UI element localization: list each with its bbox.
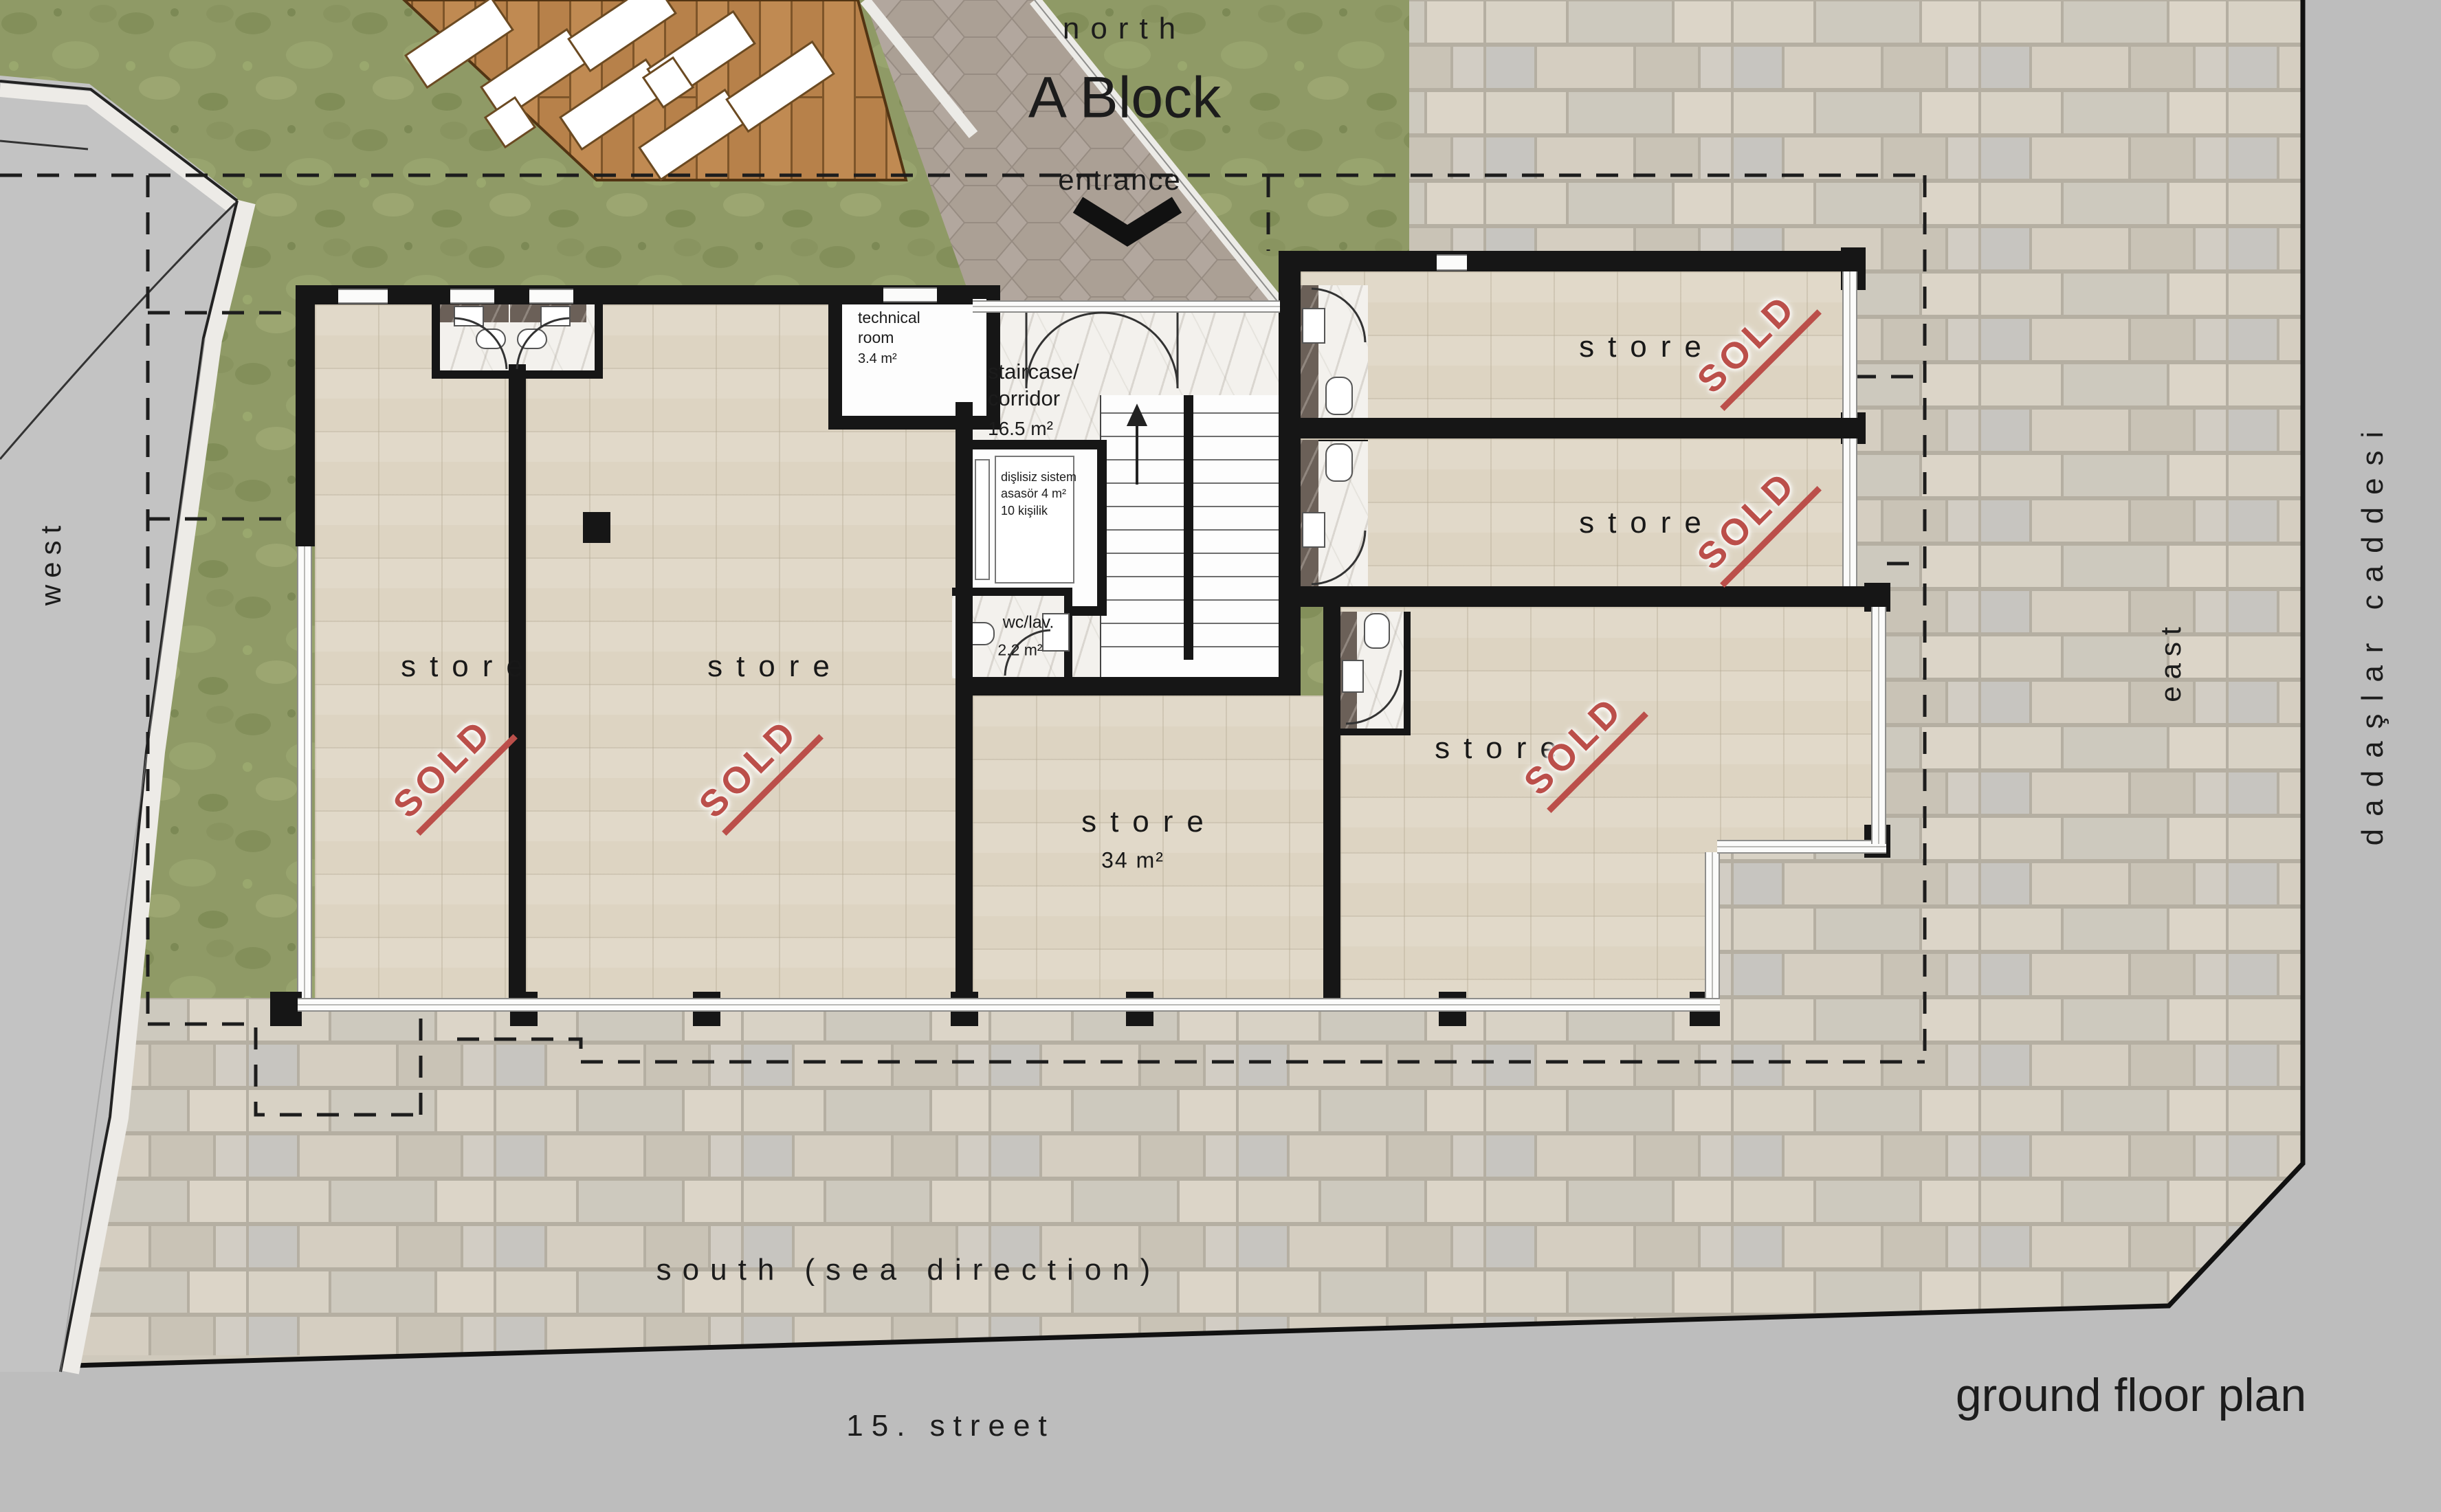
staircase-label: staircase/ corridor 16.5 m² [988, 359, 1079, 441]
store-1-label: store [401, 649, 537, 684]
wc-lav-label: wc/lav. [1003, 613, 1054, 633]
avenue-label: dadaşlar caddesi [2356, 419, 2390, 846]
door-swing [454, 318, 507, 369]
west-label: west [34, 519, 67, 605]
staircase-line2: corridor [988, 386, 1079, 412]
south-label: south (sea direction) [656, 1253, 1162, 1287]
door-swing [1346, 670, 1401, 724]
street-15-label: 15. street [846, 1409, 1054, 1443]
technical-room-line1: technical [858, 308, 920, 328]
elevator-line2: asasör 4 m² [1001, 485, 1076, 502]
plan-title: ground floor plan [1956, 1368, 2306, 1422]
block-title: A Block [1028, 65, 1221, 131]
door-swing [517, 318, 569, 369]
store-east-top-label: store [1579, 330, 1715, 364]
store-3-area: 34 m² [1101, 848, 1164, 874]
linework-layer [0, 0, 2441, 1512]
entrance-arrow-icon [1078, 205, 1177, 236]
entrance-label: entrance [1058, 164, 1181, 197]
staircase-area: 16.5 m² [988, 416, 1079, 441]
staircase-line1: staircase/ [988, 359, 1079, 386]
elevator-line3: 10 kişilik [1001, 502, 1076, 519]
door-swing [1102, 313, 1178, 388]
store-east-mid-label: store [1579, 506, 1715, 540]
store-3-label: store [1081, 805, 1217, 839]
north-label: north [1063, 12, 1186, 46]
technical-room-label: technical room 3.4 m² [858, 308, 920, 368]
elevator-label: dişlisiz sistem asasör 4 m² 10 kişilik [1001, 469, 1076, 519]
wc-lav-area: 2.2 m² [997, 641, 1042, 660]
store-2-label: store [707, 649, 843, 684]
door-swing [1312, 289, 1365, 342]
ground-floor-plan-canvas: north A Block entrance west east dadaşla… [0, 0, 2441, 1512]
elevator-line1: dişlisiz sistem [1001, 469, 1076, 485]
stair-direction-arrow [1129, 407, 1145, 485]
east-label: east [2154, 620, 2187, 702]
technical-room-area: 3.4 m² [858, 351, 920, 368]
door-swing [1312, 531, 1365, 584]
technical-room-line2: room [858, 328, 920, 348]
